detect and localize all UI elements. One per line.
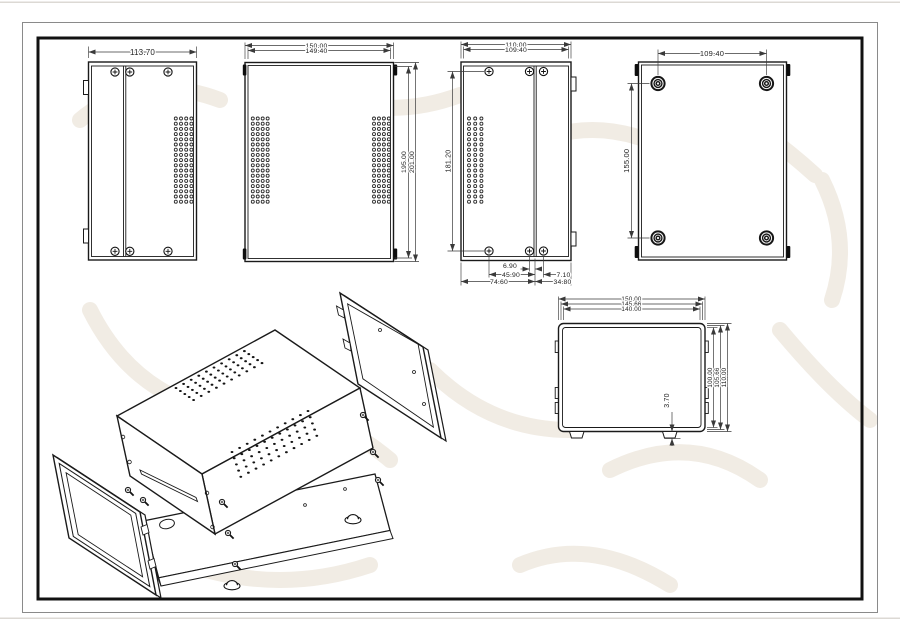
scan-edge-bottom xyxy=(0,618,900,620)
dim-front-foot-height: 3.70 xyxy=(664,393,671,407)
dim-top-depth-outer: 201.00 xyxy=(409,151,416,173)
enclosure-technical-drawing: 113.70 150.00 149.40 195.00 201.00 xyxy=(0,0,900,636)
panel-tab xyxy=(148,559,156,570)
view-top: 150.00 149.40 195.00 201.00 xyxy=(243,43,419,262)
dim-front-h-outer: 110.00 xyxy=(721,367,728,387)
mount-tab xyxy=(571,77,576,91)
dim-right-b3: 74.60 xyxy=(490,279,508,286)
mount-tab xyxy=(571,232,576,246)
view-side-left: 113.70 xyxy=(84,47,197,261)
dim-front-h-mid: 105.66 xyxy=(714,367,721,387)
dim-top-depth-inner: 195.00 xyxy=(401,151,408,173)
dim-bottom-feet-depth: 155.00 xyxy=(622,149,631,173)
dim-front-h-inner: 100.00 xyxy=(707,367,714,387)
dim-right-screw-span: 181.20 xyxy=(446,150,453,173)
front-foot xyxy=(570,432,585,439)
dim-front-w-inner: 140.00 xyxy=(621,306,641,313)
dim-right-b1: 6.90 xyxy=(503,263,517,270)
mount-tab xyxy=(84,229,89,243)
dim-right-width-inner: 109.40 xyxy=(505,47,527,54)
front-foot xyxy=(663,432,678,439)
dim-side-left-width: 113.70 xyxy=(130,48,155,57)
view-side-right: 110.00 109.40 181.20 6.90 45.90 7.10 74.… xyxy=(446,42,577,286)
dim-right-b4: 7.10 xyxy=(556,272,570,279)
scan-edge-top xyxy=(0,2,900,4)
view-bottom: 109.40 155.00 xyxy=(622,49,790,260)
dim-bottom-feet-width: 109.40 xyxy=(700,49,724,58)
panel-tab xyxy=(141,525,149,536)
dim-right-b5: 34.80 xyxy=(553,279,571,286)
dim-top-width-inner: 149.40 xyxy=(306,48,328,55)
dim-right-b2: 45.90 xyxy=(502,272,520,279)
mount-tab xyxy=(84,81,89,95)
